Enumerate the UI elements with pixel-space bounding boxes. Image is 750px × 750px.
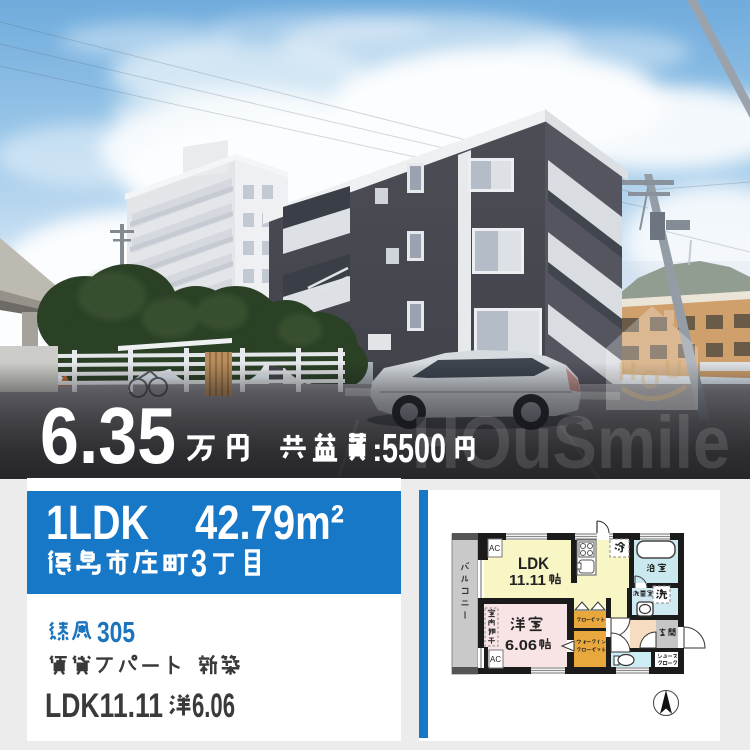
svg-text:HOuSmile: HOuSmile	[412, 401, 730, 479]
svg-text:305: 305	[97, 617, 135, 649]
svg-text:H: H	[618, 356, 637, 386]
svg-text:42.79m²: 42.79m²	[195, 497, 344, 550]
svg-text:1LDK: 1LDK	[46, 497, 149, 550]
svg-text:AC: AC	[490, 655, 501, 664]
svg-text:6.06: 6.06	[192, 687, 235, 725]
svg-text:LDK: LDK	[518, 554, 550, 573]
svg-text:AC: AC	[489, 544, 500, 553]
svg-text:6.06: 6.06	[505, 637, 537, 654]
svg-text:LDK11.11: LDK11.11	[45, 687, 163, 725]
svg-text:O: O	[640, 364, 660, 394]
svg-text:3: 3	[191, 543, 207, 585]
svg-text:11.11: 11.11	[509, 572, 546, 589]
svg-text:U: U	[664, 354, 683, 384]
svg-text:5500: 5500	[382, 425, 446, 471]
svg-text:6.35: 6.35	[40, 391, 176, 479]
